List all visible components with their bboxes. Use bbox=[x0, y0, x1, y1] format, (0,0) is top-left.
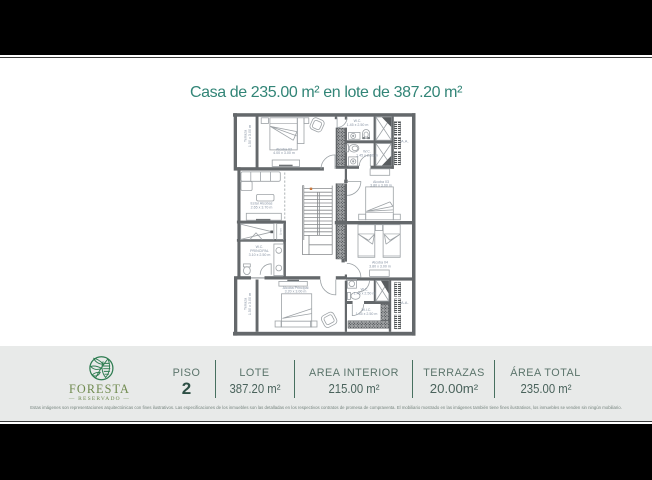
svg-text:Terraza1.50 x 3.00 m: Terraza1.50 x 3.00 m bbox=[243, 125, 251, 147]
svg-text:A.A.: A.A. bbox=[401, 138, 409, 143]
svg-text:4.00 x 3.00 m: 4.00 x 3.00 m bbox=[273, 151, 295, 155]
svg-text:1.45 x 2.50 m: 1.45 x 2.50 m bbox=[356, 153, 378, 157]
svg-text:3.80 x 3.00 m: 3.80 x 3.00 m bbox=[369, 264, 391, 268]
svg-text:Terraza1.50 x 3.00 m: Terraza1.50 x 3.00 m bbox=[243, 293, 251, 315]
svg-text:3.20 x 3.00 m: 3.20 x 3.00 m bbox=[285, 290, 307, 294]
svg-text:FORESTA: FORESTA bbox=[69, 382, 130, 396]
svg-text:3.10 x 2.50 m: 3.10 x 2.50 m bbox=[249, 253, 271, 257]
svg-text:3.80 x 3.00 m: 3.80 x 3.00 m bbox=[370, 184, 392, 188]
svg-text:1.45 x 2.50 m: 1.45 x 2.50 m bbox=[354, 291, 376, 295]
svg-text:Linos: Linos bbox=[278, 228, 282, 235]
svg-text:— RESERVADO —: — RESERVADO — bbox=[68, 396, 130, 402]
svg-text:1.45 x 2.50 m: 1.45 x 2.50 m bbox=[347, 123, 369, 127]
svg-text:A.A.: A.A. bbox=[401, 300, 409, 305]
svg-text:2.65 x 3.70 m: 2.65 x 3.70 m bbox=[251, 205, 273, 209]
svg-text:1.45 x 2.50 m: 1.45 x 2.50 m bbox=[356, 312, 378, 316]
